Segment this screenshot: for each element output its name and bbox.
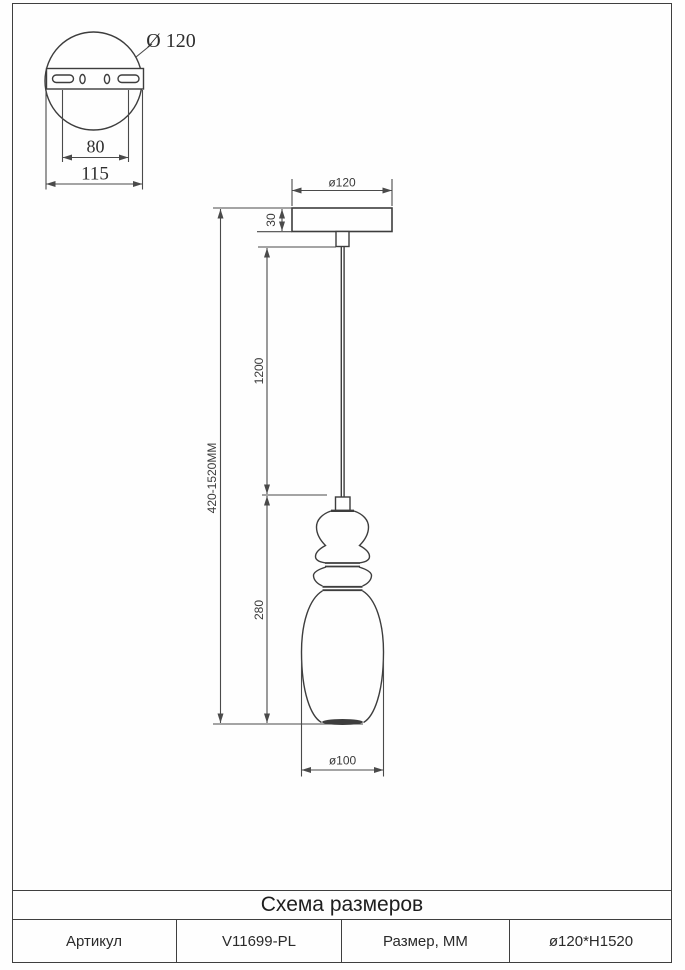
shade-height-label: 280 <box>252 600 266 620</box>
plate-width-label: 115 <box>81 164 109 185</box>
spec-table-title: Схема размеров <box>12 890 672 920</box>
spec-cell-size-heading: Размер, ММ <box>341 920 509 963</box>
suspension-length-label: 1200 <box>252 357 266 384</box>
canopy-cable-connector <box>336 232 349 247</box>
canopy-diameter-label: ø120 <box>328 176 356 190</box>
shade-bottom-lens <box>322 719 363 725</box>
canopy-height-label: 30 <box>264 213 278 227</box>
shade-disc-right <box>359 567 372 586</box>
technical-drawing: Ø 120 80 115 ø120 30 <box>0 0 685 890</box>
shade-body <box>302 591 384 723</box>
shade-cable-connector <box>336 497 351 511</box>
spec-cell-size-value: ø120*H1520 <box>509 920 672 963</box>
shade-dome-right <box>354 511 370 563</box>
spec-cell-article-heading: Артикул <box>12 920 176 963</box>
shade-disc-left <box>314 567 327 586</box>
spec-table: Схема размеров Артикул V11699-PL Размер,… <box>12 890 672 964</box>
shade-diameter-label: ø100 <box>329 754 357 768</box>
shade-dome-left <box>316 511 332 563</box>
hole-spacing-label: 80 <box>87 137 105 157</box>
overall-height-label: 420-1520MM <box>205 443 219 514</box>
glass-shade <box>302 511 384 725</box>
spec-cell-article-value: V11699-PL <box>176 920 341 963</box>
mount-diameter-label: Ø 120 <box>146 30 195 52</box>
spec-table-row: Артикул V11699-PL Размер, ММ ø120*H1520 <box>12 919 672 963</box>
ceiling-mount-detail: Ø 120 80 115 <box>45 30 196 190</box>
dimension-sheet: Ø 120 80 115 ø120 30 <box>0 0 685 970</box>
mount-bracket <box>47 69 144 90</box>
canopy <box>292 208 392 232</box>
pendant-drawing: ø120 30 420-1520MM 1200 280 <box>205 176 392 777</box>
